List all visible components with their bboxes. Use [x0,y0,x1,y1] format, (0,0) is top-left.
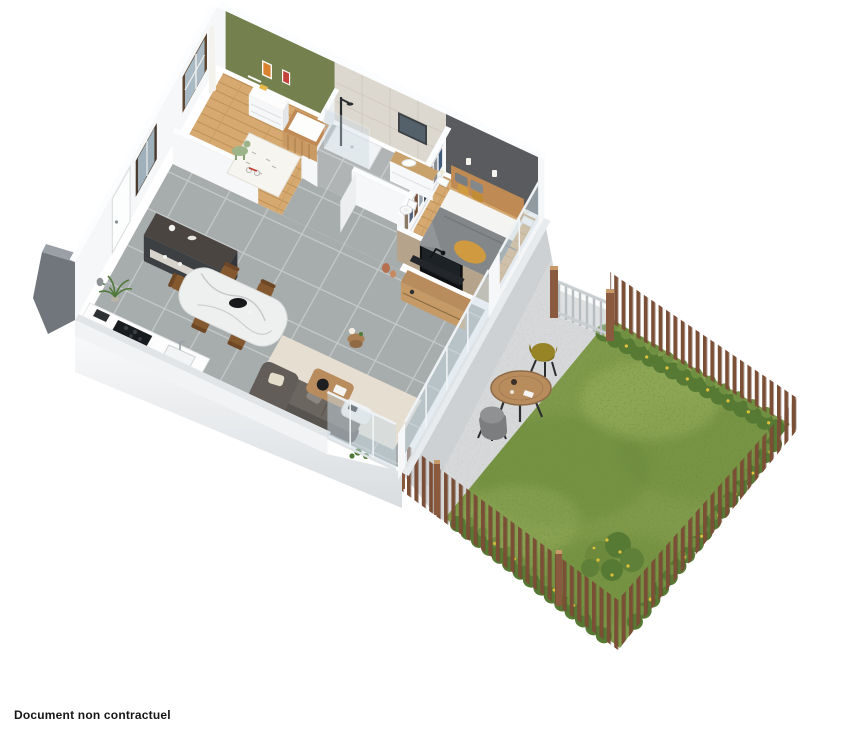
small-plant [359,332,363,336]
disclaimer-caption: Document non contractuel [14,708,171,722]
lamp [440,170,445,175]
gate-post [606,291,614,341]
cup [248,310,252,314]
floorplan-3d-render [0,0,862,733]
plate [188,236,197,240]
vase-terracotta [382,263,390,273]
ball-lamp [349,328,355,334]
table-bowl [229,298,247,308]
speaker [410,290,414,294]
gate-post [550,268,558,318]
basin [402,160,416,167]
vase-terracotta [390,270,396,278]
floorplan-scene: Document non contractuel [0,0,862,733]
door-handle [115,220,118,223]
exterior-wall-cutaway [33,252,75,334]
wall-niche-vases [97,278,110,290]
cup [220,295,224,299]
bottle [511,379,517,385]
kettle [169,225,175,231]
